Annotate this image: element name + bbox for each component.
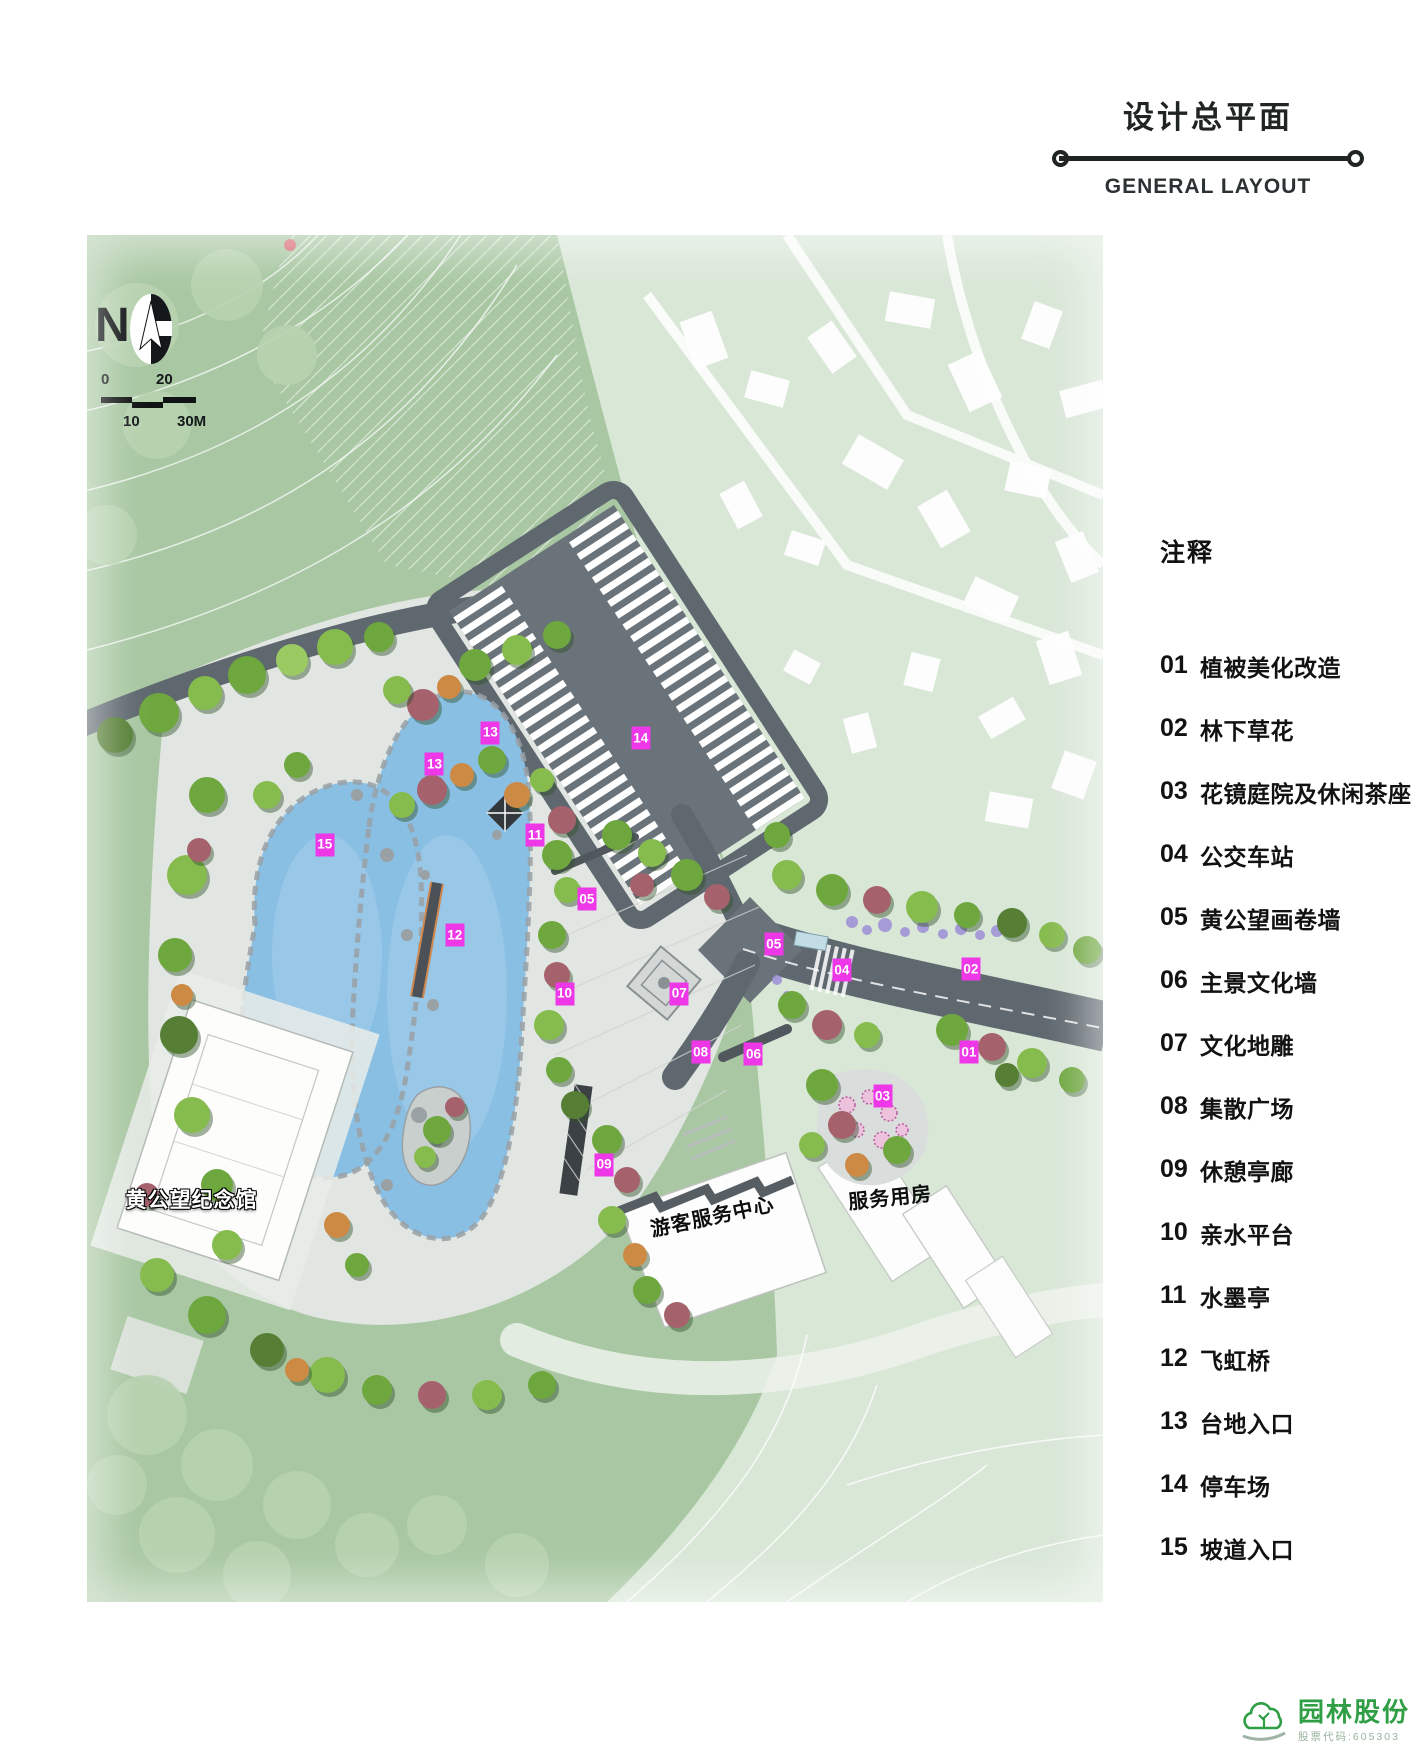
map-marker-07: 07 [670,982,689,1005]
map-marker-05: 05 [764,933,783,956]
legend-item: 14 停车场 [1160,1453,1422,1516]
legend-item: 01 植被美化改造 [1160,634,1422,697]
legend: 注释 01 植被美化改造 02 林下草花 03 花镜庭院及休闲茶座 04 公交车… [1160,538,1422,1579]
brand-logo: 园林股份 股票代码:605303 [1238,1690,1424,1752]
legend-item: 05 黄公望画卷墙 [1160,886,1422,949]
legend-item-label: 文化地雕 [1194,1027,1294,1061]
legend-item-number: 13 [1160,1407,1194,1436]
map-marker-09: 09 [595,1153,614,1176]
legend-item-number: 09 [1160,1155,1194,1184]
legend-item: 10 亲水平台 [1160,1201,1422,1264]
map-marker-13: 13 [425,753,444,776]
legend-item-label: 植被美化改造 [1194,649,1341,683]
legend-item: 15 坡道入口 [1160,1516,1422,1579]
legend-item-number: 01 [1160,651,1194,680]
legend-item-number: 08 [1160,1092,1194,1121]
legend-item-label: 主景文化墙 [1194,964,1318,998]
legend-item-label: 集散广场 [1194,1090,1294,1124]
legend-item: 04 公交车站 [1160,823,1422,886]
legend-item-label: 飞虹桥 [1194,1342,1271,1376]
legend-item-number: 02 [1160,714,1194,743]
legend-item: 09 休憩亭廊 [1160,1138,1422,1201]
legend-item-label: 公交车站 [1194,838,1294,872]
legend-item-number: 10 [1160,1218,1194,1247]
page-subtitle: GENERAL LAYOUT [1050,175,1366,199]
legend-item-number: 06 [1160,966,1194,995]
map-marker-06: 06 [744,1042,763,1065]
legend-item-label: 休憩亭廊 [1194,1153,1294,1187]
legend-item-number: 05 [1160,903,1194,932]
map-marker-11: 11 [526,824,545,847]
legend-item-label: 黄公望画卷墙 [1194,901,1341,935]
legend-item-number: 03 [1160,777,1194,806]
legend-item: 07 文化地雕 [1160,1012,1422,1075]
map-marker-01: 01 [959,1041,978,1064]
map-marker-05: 05 [577,888,596,911]
legend-item-label: 林下草花 [1194,712,1294,746]
map-marker-08: 08 [691,1041,710,1064]
legend-list: 01 植被美化改造 02 林下草花 03 花镜庭院及休闲茶座 04 公交车站 0… [1160,634,1422,1579]
legend-item-label: 亲水平台 [1194,1216,1294,1250]
legend-item-number: 14 [1160,1470,1194,1499]
legend-item-label: 花镜庭院及休闲茶座 [1194,775,1412,809]
stock-code: 股票代码:605303 [1298,1729,1410,1744]
legend-item-label: 停车场 [1194,1468,1271,1502]
title-underline [1052,150,1364,168]
cloud-tree-logo-icon [1238,1695,1290,1747]
map-marker-04: 04 [832,959,851,982]
legend-heading: 注释 [1160,538,1422,568]
map-marker-10: 10 [555,982,574,1005]
map-marker-02: 02 [961,958,980,981]
legend-item-label: 坡道入口 [1194,1531,1294,1565]
legend-item-number: 07 [1160,1029,1194,1058]
map-marker-03: 03 [873,1085,892,1108]
legend-item: 08 集散广场 [1160,1075,1422,1138]
brand-name: 园林股份 [1298,1698,1410,1726]
legend-item-number: 15 [1160,1533,1194,1562]
page-title: 设计总平面 [1050,92,1366,137]
legend-item: 13 台地入口 [1160,1390,1422,1453]
legend-item-number: 04 [1160,840,1194,869]
map-marker-12: 12 [445,923,464,946]
legend-item-label: 水墨亭 [1194,1279,1271,1313]
legend-item: 02 林下草花 [1160,697,1422,760]
rule-bar [1059,156,1357,161]
legend-item-label: 台地入口 [1194,1405,1294,1439]
rule-end-dot-right [1347,150,1364,167]
marker-layer: 0102030405050607080910111213131415 [87,235,1103,1602]
legend-item: 12 飞虹桥 [1160,1327,1422,1390]
map-marker-14: 14 [631,727,650,750]
legend-item: 06 主景文化墙 [1160,949,1422,1012]
legend-item: 03 花镜庭院及休闲茶座 [1160,760,1422,823]
layout-sheet: 设计总平面 GENERAL LAYOUT [0,0,1424,1754]
map-marker-13: 13 [481,721,500,744]
map-marker-15: 15 [315,833,334,856]
page-title-block: 设计总平面 GENERAL LAYOUT [1050,92,1366,199]
site-plan-map: N 0 20 10 30M 黄公望纪念馆游客服务中心服务用房 010203040… [87,235,1103,1602]
legend-item: 11 水墨亭 [1160,1264,1422,1327]
legend-item-number: 12 [1160,1344,1194,1373]
legend-item-number: 11 [1160,1281,1194,1310]
